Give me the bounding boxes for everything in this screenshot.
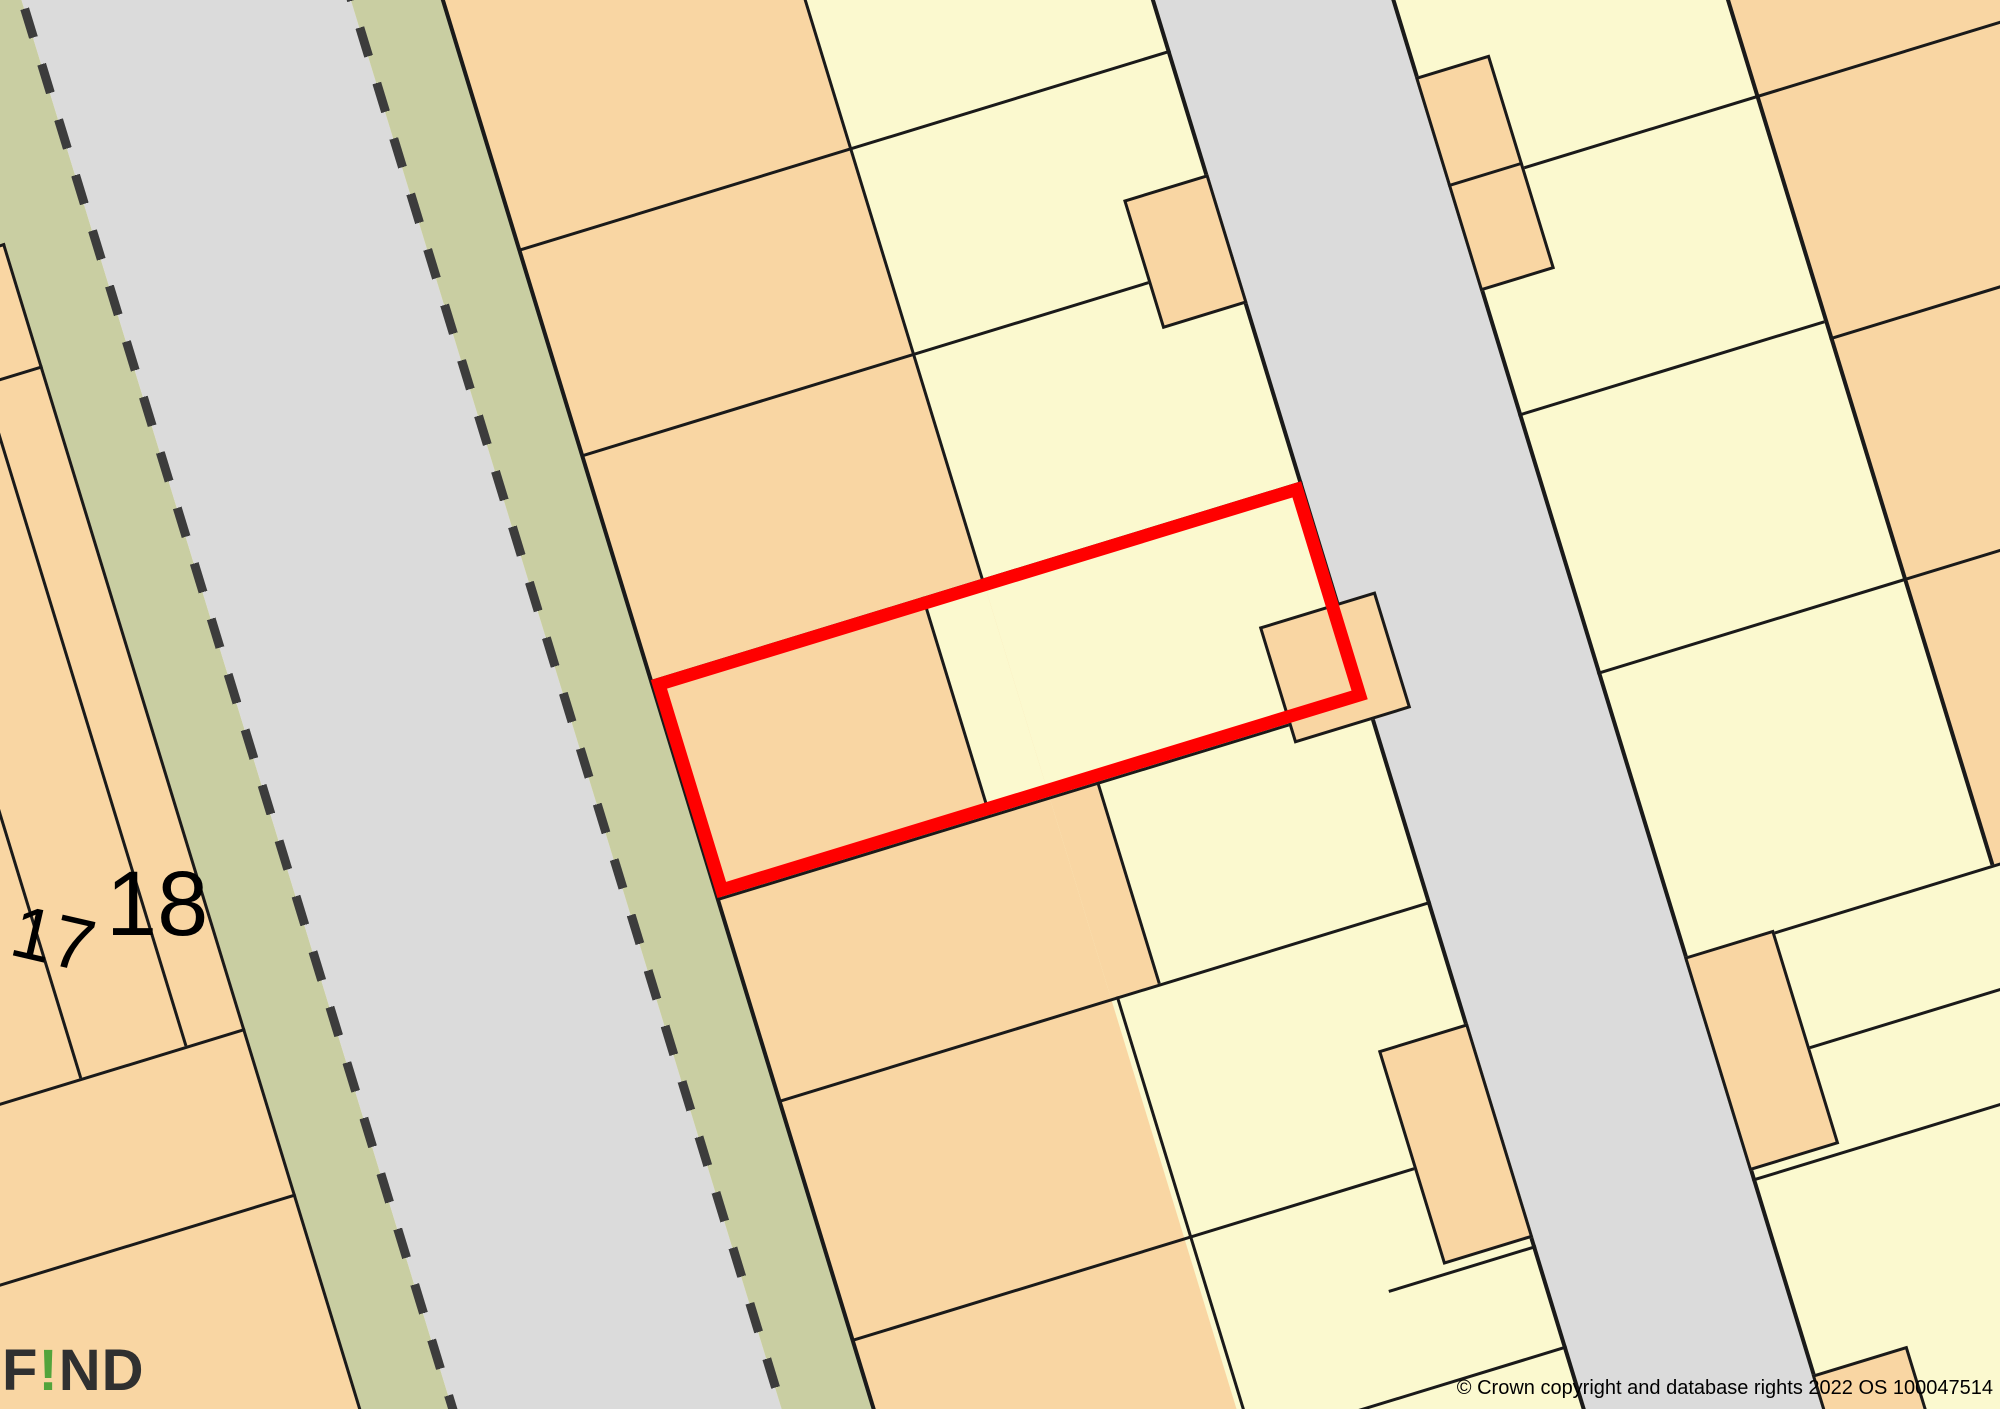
logo-letters-nd: ND [59,1338,145,1403]
map-canvas: 17 18 F!ND © Crown copyright and databas… [0,0,2000,1409]
map-rotated-grid [0,0,2000,1409]
logo-letter-f: F [2,1338,38,1403]
parcel-label-17: 17 [5,894,102,985]
logo-exclamation: ! [38,1338,58,1403]
parcel-label-18: 18 [106,858,208,950]
copyright-notice: © Crown copyright and database rights 20… [1457,1377,1993,1400]
find-logo: F!ND [2,1342,145,1400]
